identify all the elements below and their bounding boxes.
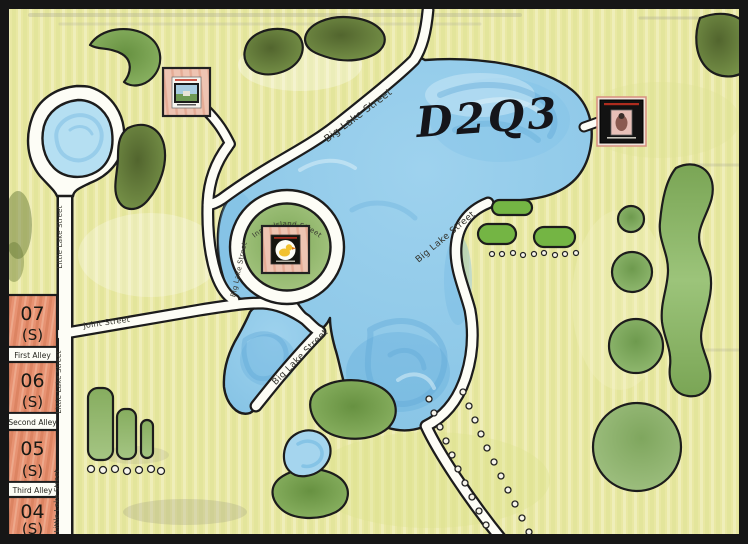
bush-top-center-2 (305, 17, 385, 60)
planter-bar-2 (117, 409, 136, 459)
tree-circle-large (609, 319, 663, 373)
hedge-2 (478, 224, 516, 244)
house-suffix: (S) (22, 462, 43, 480)
planter-bar-1 (88, 388, 113, 460)
planter-bar-3 (141, 420, 153, 458)
house-number: 06 (20, 370, 44, 392)
bush-south-lower (273, 469, 348, 518)
alley-label-third: Third Alley (12, 486, 53, 495)
hedge-1 (492, 200, 532, 215)
hedge-3 (534, 227, 575, 247)
map-canvas: D2Q3 (0, 0, 748, 544)
house-suffix: (S) (22, 393, 43, 411)
stamp-marker (597, 97, 646, 146)
house-tiles: 07 (S) First Alley 06 (S) Second Alley 0… (8, 295, 57, 538)
house-number: 07 (20, 303, 44, 325)
caption-marks (604, 103, 639, 105)
photo-house (183, 91, 190, 96)
house-number: 05 (20, 438, 44, 460)
tree-circle-small (618, 206, 644, 232)
duck-head (286, 244, 292, 250)
dotted-row-hedges (490, 251, 579, 258)
duck-medallion-marker (262, 226, 309, 273)
house-suffix: (S) (22, 326, 43, 344)
caption-marks (274, 237, 297, 239)
map-code-label: D2Q3 (414, 88, 562, 147)
framed-photo-marker (163, 68, 210, 116)
tree-circle-xlarge (593, 403, 681, 491)
alley-label-second: Second Alley (8, 418, 57, 427)
caption-marks (175, 79, 197, 81)
street-label-little-lake-1: Little Lake Street (56, 205, 64, 268)
tree-circle-medium (612, 252, 652, 292)
street-label-little-lake-3: Little Lake Street (53, 469, 61, 532)
street-label-little-lake-2: Little Lake Street (55, 350, 63, 413)
alley-label-first: First Alley (14, 351, 51, 360)
bush-south-center (310, 380, 396, 439)
hand-drawn-map: D2Q3 (0, 0, 748, 544)
